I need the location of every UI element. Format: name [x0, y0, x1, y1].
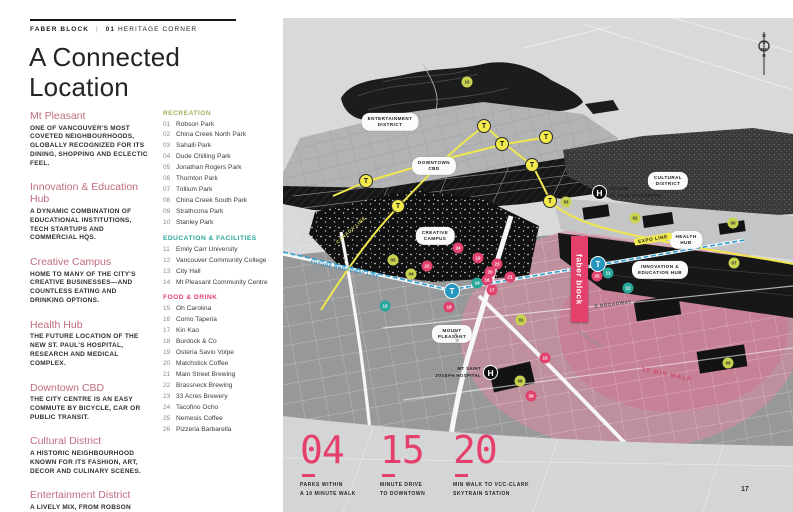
stat-label: PARKS WITHIN A 10 MINUTE WALK: [300, 481, 356, 499]
compass: NORTH: [757, 32, 771, 60]
legend-item-number: 11: [163, 246, 176, 255]
map-label-downtown-cbd: DOWNTOWN CBD: [412, 157, 456, 175]
legend-item-number: 04: [163, 153, 176, 162]
legend-item: 25Nemesis Coffee: [163, 415, 281, 424]
legend-item-number: 22: [163, 382, 176, 391]
district-name: Downtown CBD: [30, 382, 151, 394]
legend-item: 09Strathcona Park: [163, 208, 281, 217]
legend-item-name: Main Street Brewing: [176, 371, 235, 380]
district-section: Creative CampusHOME TO MANY OF THE CITY'…: [30, 256, 151, 306]
district-section: Innovation & Education HubA DYNAMIC COMB…: [30, 181, 151, 243]
district-description: HOME TO MANY OF THE CITY'S CREATIVE BUSI…: [30, 271, 151, 306]
district-name: Creative Campus: [30, 256, 151, 268]
district-description: THE CITY CENTRE IS AN EASY COMMUTE BY BI…: [30, 396, 151, 422]
district-name: Entertainment District: [30, 489, 151, 501]
legend-item: 24Tacofino Ocho: [163, 404, 281, 413]
legend-item-name: Emily Carr University: [176, 246, 238, 255]
legend-item-number: 21: [163, 371, 176, 380]
transit-station-icon: T: [391, 199, 405, 213]
legend-item-number: 26: [163, 426, 176, 435]
stat-value: 04: [300, 430, 356, 470]
legend-item-name: Kin Kao: [176, 327, 199, 336]
district-name: Health Hub: [30, 319, 151, 331]
legend-item-name: City Hall: [176, 268, 201, 277]
legend-group: FOOD & DRINK15Oh Carolina16Como Taperia1…: [163, 294, 281, 434]
legend-item: 07Trillium Park: [163, 186, 281, 195]
legend-item-name: Robson Park: [176, 121, 214, 130]
legend-item-number: 24: [163, 404, 176, 413]
brochure-page: FABER BLOCK | 01 HERITAGE CORNER A Conne…: [0, 0, 793, 512]
map-poi-dot: 11: [603, 268, 614, 279]
stat-underline: [455, 474, 468, 477]
legend-item-name: Mt Pleasant Community Centre: [176, 279, 268, 288]
legend-item-name: China Creek South Park: [176, 197, 247, 206]
map-label-creative-campus: CREATIVE CAMPUS: [416, 227, 455, 245]
map-poi-dot: 01: [516, 315, 527, 326]
legend-item: 01Robson Park: [163, 121, 281, 130]
chapter-title: HERITAGE CORNER: [118, 26, 197, 33]
transit-station-icon: T: [359, 174, 373, 188]
isometric-map: ENTERTAINMENT DISTRICT DOWNTOWN CBD CULT…: [283, 18, 793, 512]
hospital-icon: H: [484, 366, 497, 379]
stat-walk: 20 MIN WALK TO VCC-CLARK SKYTRAIN STATIO…: [453, 430, 529, 499]
hospital-label: FUTURE ST. PAUL'S HOSPITAL: [609, 186, 662, 199]
map-poi-dot: 15: [540, 353, 551, 364]
legend-item: 2333 Acres Brewery: [163, 393, 281, 402]
district-description: THE FUTURE LOCATION OF THE NEW ST. PAUL'…: [30, 333, 151, 368]
legend-item-number: 15: [163, 305, 176, 314]
district-description: A LIVELY MIX, FROM ROBSON STREET'S BOUTI…: [30, 504, 151, 512]
future-broadway-line-label: FUTURE BROADWAY LINE: [310, 259, 380, 279]
district-section: Entertainment DistrictA LIVELY MIX, FROM…: [30, 489, 151, 512]
legend-heading: EDUCATION & FACILITIES: [163, 235, 281, 242]
legend-item-number: 03: [163, 142, 176, 151]
district-section: Downtown CBDTHE CITY CENTRE IS AN EASY C…: [30, 382, 151, 423]
hospital-label: MT SAINT JOSEPH HOSPITAL: [435, 366, 481, 379]
legend-item-name: Vancouver Community College: [176, 257, 266, 266]
district-list: Mt PleasantONE OF VANCOUVER'S MOST COVET…: [30, 110, 151, 512]
page-title-line1: A Connected: [29, 42, 180, 72]
transit-station-icon: T: [590, 256, 606, 272]
legend-item-number: 06: [163, 175, 176, 184]
legend-item: 04Dude Chilling Park: [163, 153, 281, 162]
legend-item-number: 20: [163, 360, 176, 369]
legend-item: 15Oh Carolina: [163, 305, 281, 314]
map-poi-dot: 19: [473, 253, 484, 264]
map-poi-dot: 22: [422, 261, 433, 272]
district-name: Cultural District: [30, 435, 151, 447]
legend-item: 06Thornton Park: [163, 175, 281, 184]
map-poi-dot: 17: [487, 285, 498, 296]
district-description: ONE OF VANCOUVER'S MOST COVETED NEIGHBOU…: [30, 125, 151, 169]
mt-saint-joseph-hospital-marker: MT SAINT JOSEPH HOSPITAL H: [435, 366, 497, 379]
legend-item: 17Kin Kao: [163, 327, 281, 336]
district-section: Mt PleasantONE OF VANCOUVER'S MOST COVET…: [30, 110, 151, 168]
legend-item: 18Burdock & Co: [163, 338, 281, 347]
legend-item: 26Pizzeria Barbarella: [163, 426, 281, 435]
kingsway-label: KINGSWAY: [577, 330, 604, 350]
legend-item-name: Nemesis Coffee: [176, 415, 223, 424]
transit-station-icon: T: [444, 283, 460, 299]
legend-item: 05Jonathan Rogers Park: [163, 164, 281, 173]
map-label-innovation-education-hub: INNOVATION & EDUCATION HUB: [632, 261, 688, 279]
legend-item-number: 07: [163, 186, 176, 195]
map-label-entertainment-district: ENTERTAINMENT DISTRICT: [362, 113, 419, 131]
legend-item: 21Main Street Brewing: [163, 371, 281, 380]
map-poi-dot: 07: [729, 258, 740, 269]
breadcrumb: FABER BLOCK | 01 HERITAGE CORNER: [30, 26, 197, 33]
legend-item-number: 09: [163, 208, 176, 217]
district-name: Innovation & Education Hub: [30, 181, 151, 205]
map-poi-dot: 24: [453, 243, 464, 254]
map-poi-dot: 12: [623, 283, 634, 294]
legend-item-number: 13: [163, 268, 176, 277]
legend-item-number: 14: [163, 279, 176, 288]
map-poi-dot: 08: [515, 376, 526, 387]
legend-item-name: Burdock & Co: [176, 338, 217, 347]
district-section: Health HubTHE FUTURE LOCATION OF THE NEW…: [30, 319, 151, 369]
legend-item: 08China Creek South Park: [163, 197, 281, 206]
walk-radius-label: 10 MIN WALK: [641, 367, 693, 384]
map-poi-dot: 04: [406, 269, 417, 280]
legend-item: 12Vancouver Community College: [163, 257, 281, 266]
district-description: A DYNAMIC COMBINATION OF EDUCATIONAL INS…: [30, 208, 151, 243]
map-poi-dot: 26: [526, 391, 537, 402]
map-poi-dot: 09: [723, 358, 734, 369]
legend-item-number: 01: [163, 121, 176, 130]
legend-item-number: 05: [163, 164, 176, 173]
brand-name: FABER BLOCK: [30, 26, 89, 33]
legend-item-name: Thornton Park: [176, 175, 218, 184]
map-poi-dot: 06: [728, 218, 739, 229]
legend-item-name: Tacofino Ocho: [176, 404, 218, 413]
legend-item-number: 02: [163, 131, 176, 140]
map-poi-dot: 21: [505, 272, 516, 283]
legend-item-name: Jonathan Rogers Park: [176, 164, 242, 173]
transit-station-icon: T: [477, 119, 491, 133]
faber-block-marker: faber block: [571, 236, 588, 322]
legend-item-name: Pizzeria Barbarella: [176, 426, 231, 435]
page-title: A Connected Location: [29, 42, 180, 102]
map-poi-dot: 25: [592, 271, 603, 282]
map-poi-dot: 23: [492, 259, 503, 270]
stat-label: MIN WALK TO VCC-CLARK SKYTRAIN STATION: [453, 481, 529, 499]
district-description: A HISTORIC NEIGHBOURHOOD KNOWN FOR ITS F…: [30, 450, 151, 476]
legend-item-number: 12: [163, 257, 176, 266]
legend-item-name: Sahalli Park: [176, 142, 211, 151]
legend-item: 03Sahalli Park: [163, 142, 281, 151]
legend-item-name: 33 Acres Brewery: [176, 393, 228, 402]
legend-item-name: Matchstick Coffee: [176, 360, 228, 369]
map-label-health-hub: HEALTH HUB: [670, 231, 703, 249]
legend-item: 20Matchstick Coffee: [163, 360, 281, 369]
legend-item: 02China Creek North Park: [163, 131, 281, 140]
map-overlay: ENTERTAINMENT DISTRICT DOWNTOWN CBD CULT…: [283, 18, 793, 512]
legend-item-name: Strathcona Park: [176, 208, 223, 217]
legend-item: 13City Hall: [163, 268, 281, 277]
legend-item: 16Como Taperia: [163, 316, 281, 325]
map-poi-dot: 03: [561, 197, 572, 208]
legend-item-name: Stanley Park: [176, 219, 213, 228]
stat-underline: [302, 474, 315, 477]
transit-station-icon: T: [525, 158, 539, 172]
stat-drive: 15 MINUTE DRIVE TO DOWNTOWN: [380, 430, 425, 499]
map-poi-dot: 13: [380, 301, 391, 312]
map-poi-dot: 02: [630, 213, 641, 224]
e-broadway-label: E BROADWAY: [594, 299, 632, 309]
legend-item: 14Mt Pleasant Community Centre: [163, 279, 281, 288]
map-poi-dot: 18: [444, 302, 455, 313]
legend-item-number: 18: [163, 338, 176, 347]
canada-line-label: CANADA LINE: [335, 215, 367, 244]
stat-underline: [382, 474, 395, 477]
expo-line-label: EXPO LINE: [634, 232, 673, 245]
compass-needle: [757, 32, 771, 76]
page-number: 17: [741, 486, 749, 493]
legend-heading: FOOD & DRINK: [163, 294, 281, 301]
map-poi-dot: 05: [388, 255, 399, 266]
stat-parks: 04 PARKS WITHIN A 10 MINUTE WALK: [300, 430, 356, 499]
legend-item: 10Stanley Park: [163, 219, 281, 228]
legend-list: RECREATION01Robson Park02China Creek Nor…: [163, 110, 281, 442]
legend-item-number: 23: [163, 393, 176, 402]
legend-item: 22Brassneck Brewing: [163, 382, 281, 391]
map-label-mount-pleasant: MOUNT PLEASANT: [432, 325, 472, 343]
hospital-icon: H: [593, 186, 606, 199]
legend-group: EDUCATION & FACILITIES11Emily Carr Unive…: [163, 235, 281, 287]
transit-station-icon: T: [495, 137, 509, 151]
stat-value: 20: [453, 430, 529, 470]
legend-item-number: 16: [163, 316, 176, 325]
district-name: Mt Pleasant: [30, 110, 151, 122]
legend-item-name: China Creek North Park: [176, 131, 246, 140]
legend-item-name: Oh Carolina: [176, 305, 211, 314]
map-poi-dot: 10: [462, 77, 473, 88]
legend-group: RECREATION01Robson Park02China Creek Nor…: [163, 110, 281, 228]
transit-station-icon: T: [543, 194, 557, 208]
legend-heading: RECREATION: [163, 110, 281, 117]
legend-item-name: Dude Chilling Park: [176, 153, 231, 162]
header-rule: [30, 19, 236, 21]
future-st-pauls-hospital-marker: H FUTURE ST. PAUL'S HOSPITAL: [593, 186, 662, 199]
legend-item-number: 08: [163, 197, 176, 206]
legend-item-number: 19: [163, 349, 176, 358]
legend-item-name: Osteria Savio Volpe: [176, 349, 234, 358]
chapter-number: 01: [106, 26, 115, 33]
stat-value: 15: [380, 430, 425, 470]
district-section: Cultural DistrictA HISTORIC NEIGHBOURHOO…: [30, 435, 151, 476]
breadcrumb-divider: |: [96, 26, 99, 33]
legend-item: 11Emily Carr University: [163, 246, 281, 255]
transit-station-icon: T: [539, 130, 553, 144]
page-title-line2: Location: [29, 72, 180, 102]
stat-label: MINUTE DRIVE TO DOWNTOWN: [380, 481, 425, 499]
legend-item-name: Trillium Park: [176, 186, 212, 195]
legend-item-number: 17: [163, 327, 176, 336]
legend-item-name: Como Taperia: [176, 316, 217, 325]
legend-item-number: 10: [163, 219, 176, 228]
legend-item: 19Osteria Savio Volpe: [163, 349, 281, 358]
legend-item-number: 25: [163, 415, 176, 424]
legend-item-name: Brassneck Brewing: [176, 382, 232, 391]
